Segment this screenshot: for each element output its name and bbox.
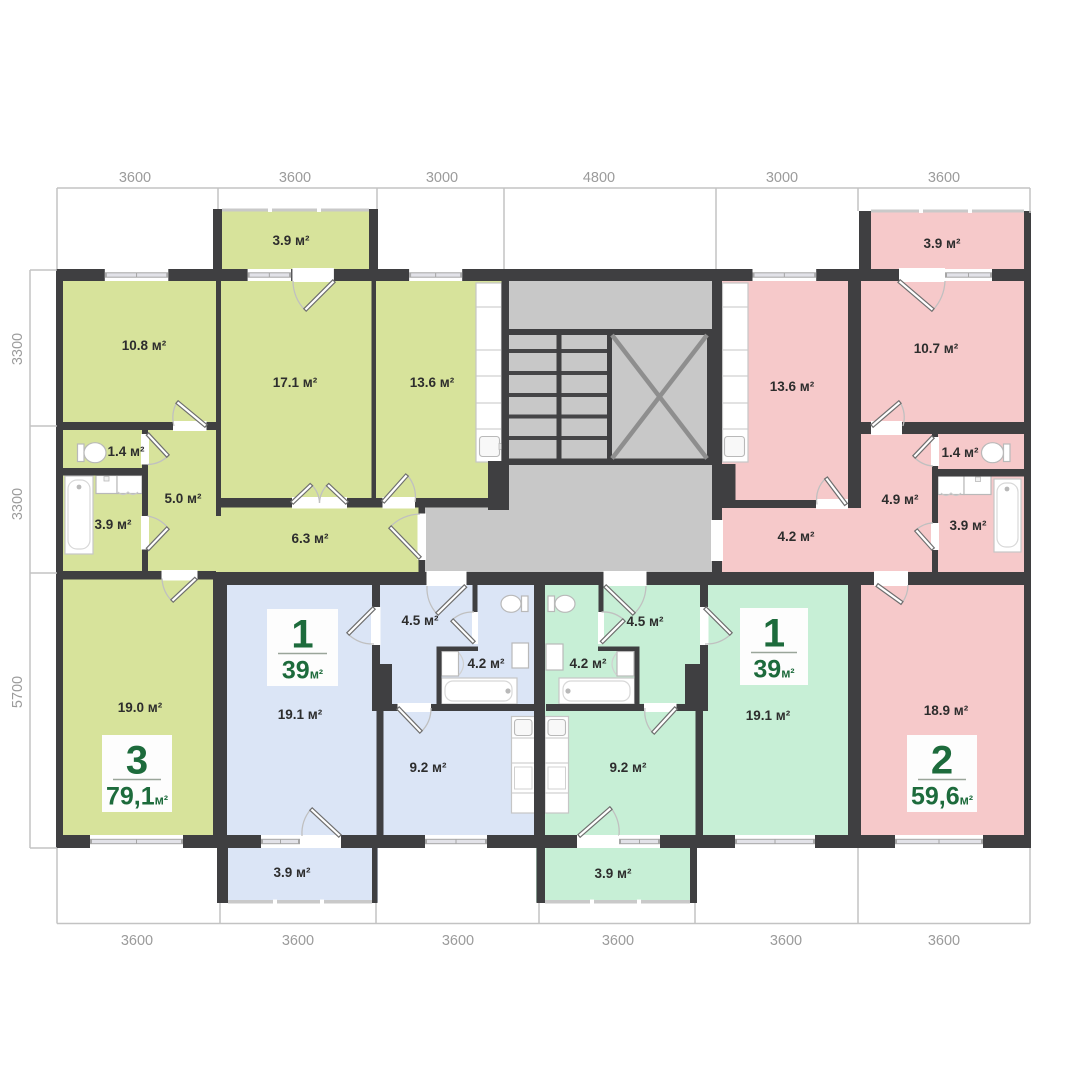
svg-text:4800: 4800 [583, 170, 615, 186]
svg-text:3600: 3600 [928, 933, 960, 949]
svg-text:5700: 5700 [10, 676, 26, 708]
svg-text:3600: 3600 [928, 170, 960, 186]
svg-text:4.5 м²: 4.5 м² [627, 614, 665, 629]
svg-text:3.9 м²: 3.9 м² [950, 518, 988, 533]
svg-text:6.3 м²: 6.3 м² [292, 531, 330, 546]
svg-text:3000: 3000 [426, 170, 458, 186]
svg-text:13.6 м²: 13.6 м² [770, 379, 815, 394]
svg-text:3.9 м²: 3.9 м² [95, 517, 133, 532]
svg-text:18.9 м²: 18.9 м² [924, 703, 969, 718]
svg-text:10.8 м²: 10.8 м² [122, 338, 167, 353]
svg-text:13.6 м²: 13.6 м² [410, 375, 455, 390]
svg-text:9.2 м²: 9.2 м² [410, 760, 448, 775]
svg-text:3300: 3300 [10, 333, 26, 365]
svg-text:3600: 3600 [279, 170, 311, 186]
svg-text:3600: 3600 [121, 933, 153, 949]
svg-text:4.2 м²: 4.2 м² [468, 656, 506, 671]
svg-text:2: 2 [931, 739, 953, 783]
svg-text:1: 1 [763, 612, 785, 656]
svg-text:9.2 м²: 9.2 м² [610, 760, 648, 775]
svg-text:3600: 3600 [282, 933, 314, 949]
svg-text:10.7 м²: 10.7 м² [914, 341, 959, 356]
svg-text:19.1 м²: 19.1 м² [278, 707, 323, 722]
svg-text:3600: 3600 [442, 933, 474, 949]
svg-text:3.9 м²: 3.9 м² [273, 233, 311, 248]
svg-text:3300: 3300 [10, 488, 26, 520]
svg-text:17.1 м²: 17.1 м² [273, 375, 318, 390]
svg-text:3: 3 [126, 739, 148, 783]
svg-text:4.2 м²: 4.2 м² [778, 529, 816, 544]
svg-text:1: 1 [291, 613, 313, 657]
svg-text:3.9 м²: 3.9 м² [595, 866, 633, 881]
svg-text:4.2 м²: 4.2 м² [570, 656, 608, 671]
svg-text:3.9 м²: 3.9 м² [924, 236, 962, 251]
svg-text:3000: 3000 [766, 170, 798, 186]
svg-text:4.9 м²: 4.9 м² [882, 492, 920, 507]
svg-text:5.0 м²: 5.0 м² [165, 491, 203, 506]
svg-text:4.5 м²: 4.5 м² [402, 613, 440, 628]
svg-text:3600: 3600 [602, 933, 634, 949]
svg-text:1.4 м²: 1.4 м² [942, 445, 980, 460]
svg-text:19.1 м²: 19.1 м² [746, 708, 791, 723]
svg-text:3.9 м²: 3.9 м² [274, 865, 312, 880]
svg-text:1.4 м²: 1.4 м² [108, 444, 146, 459]
svg-text:3600: 3600 [770, 933, 802, 949]
svg-text:19.0 м²: 19.0 м² [118, 700, 163, 715]
svg-text:3600: 3600 [119, 170, 151, 186]
